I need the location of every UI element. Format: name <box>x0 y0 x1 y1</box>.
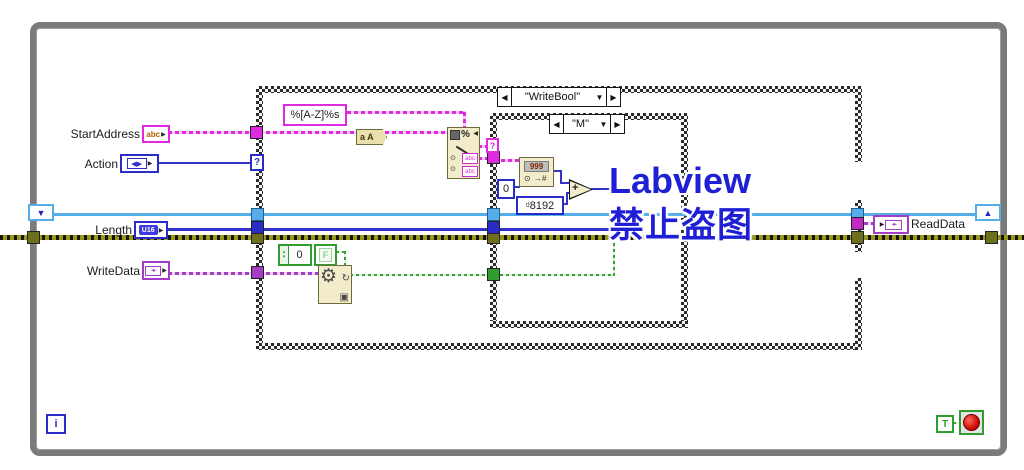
inner-case-selector-terminal[interactable]: ? <box>486 138 499 153</box>
scan-in-case-wire <box>501 159 519 162</box>
to-upper-case-node[interactable]: a A <box>356 129 387 145</box>
to-upper-label: a A <box>360 132 374 142</box>
reference-wire <box>52 213 978 216</box>
enum-zero-constant[interactable]: ▴▾ 0 <box>278 244 312 266</box>
shift-register-left[interactable]: ▼ <box>28 204 54 221</box>
zero-constant[interactable]: 0 <box>497 179 515 199</box>
true-constant[interactable]: T <box>936 415 954 433</box>
question-icon: ? <box>254 157 260 168</box>
decimal-string-to-number-node[interactable]: 999 ⊙ →# <box>519 157 554 187</box>
format-string-wire-h <box>347 111 466 114</box>
cluster-type-glyph: -●- <box>885 220 902 230</box>
input-square-icon <box>450 130 460 140</box>
format-string-constant[interactable]: %[A-Z]%s <box>283 104 347 126</box>
length-tunnel-case-left <box>251 221 264 234</box>
enum-zero-value: 0 <box>289 249 310 261</box>
small-arrow-icon: ◀ <box>473 130 478 137</box>
gear-icon: ⚙ <box>320 265 337 288</box>
length-wire <box>166 228 640 231</box>
format-string-value: %[A-Z]%s <box>291 109 340 121</box>
u16-type-glyph: U16 <box>139 225 158 235</box>
right-arrow-icon: ▶ <box>162 267 167 274</box>
start-address-terminal[interactable]: abc ▶ <box>142 125 170 143</box>
action-wire <box>157 162 254 164</box>
right-arrow-icon: ▶ <box>159 227 164 234</box>
length-terminal[interactable]: U16 ▶ <box>134 221 168 239</box>
cluster-tunnel-case-left <box>251 266 264 279</box>
case-prev-icon[interactable]: ◀ <box>498 88 512 106</box>
target-icon: ⊙ <box>450 165 456 173</box>
right-arrow-icon: ▶ <box>880 221 885 228</box>
inner-case-name[interactable]: "M" <box>564 118 597 130</box>
error-tunnel-loop-left <box>27 231 40 244</box>
zero-value: 0 <box>503 183 509 195</box>
boolean-tunnel-inner-left <box>487 268 500 281</box>
watermark-line2: 禁止盗图 <box>609 197 753 248</box>
plus-icon: + <box>572 182 578 194</box>
percent-icon: % <box>461 129 470 140</box>
read-data-label: ReadData <box>911 217 965 231</box>
offset-value: 8192 <box>530 200 554 212</box>
add-node[interactable]: + <box>569 179 593 200</box>
outer-case-name[interactable]: "WriteBool" <box>512 91 593 103</box>
question-icon: ? <box>490 141 496 151</box>
cluster-tunnel-case-right <box>851 217 864 230</box>
watermark-line1: Labview <box>609 160 751 202</box>
case-next-icon[interactable]: ▶ <box>606 88 620 106</box>
window-icon: ▣ <box>340 292 349 303</box>
right-arrow-icon: ▶ <box>161 131 166 138</box>
string-output-chip: abc <box>462 153 478 164</box>
read-data-terminal[interactable]: ▶ -●- <box>873 215 909 234</box>
write-data-terminal[interactable]: -●- ▶ <box>142 261 170 280</box>
target-icon: ⊙ <box>450 154 456 162</box>
up-triangle-icon: ▲ <box>984 208 993 218</box>
right-arrow-icon: ▶ <box>148 160 153 167</box>
down-triangle-icon: ▼ <box>37 208 46 218</box>
case-next-icon[interactable]: ▶ <box>610 115 624 133</box>
reference-tunnel-case-left <box>251 208 264 221</box>
start-address-wire <box>168 131 448 134</box>
outer-case-selector-label[interactable]: ◀ "WriteBool" ▼ ▶ <box>497 87 621 107</box>
string-type-glyph: abc <box>146 130 160 139</box>
outer-case-border-right-3 <box>855 278 862 350</box>
digits-display: 999 <box>524 161 549 172</box>
false-value: F <box>319 248 332 262</box>
inner-case-border-bottom <box>490 321 688 328</box>
spinner-icon[interactable]: ▴▾ <box>280 246 289 264</box>
case-prev-icon[interactable]: ◀ <box>550 115 564 133</box>
stop-icon <box>963 414 980 431</box>
false-wire-v <box>344 251 346 266</box>
string-output-chip: abc <box>462 166 478 177</box>
action-label: Action <box>78 157 118 171</box>
gear-convert-node[interactable]: ⚙ ↻ ▣ <box>318 265 352 304</box>
iteration-i: i <box>54 418 57 430</box>
write-data-wire <box>168 272 318 275</box>
length-label: Length <box>86 223 132 237</box>
iteration-terminal[interactable]: i <box>46 414 66 434</box>
false-constant[interactable]: F <box>314 244 337 266</box>
reference-tunnel-inner-left <box>487 208 500 221</box>
labview-block-diagram: ? ? ▼ ▲ ◀ "WriteBool" ▼ ▶ ◀ "M" ▼ ▶ %[A-… <box>0 0 1024 470</box>
error-tunnel-case-right <box>851 231 864 244</box>
true-value: T <box>942 419 948 430</box>
target-icon: ⊙ <box>524 174 531 183</box>
case-dropdown-icon[interactable]: ▼ <box>597 115 610 133</box>
enum-type-glyph: ◀▶ <box>127 158 147 169</box>
outer-case-selector-terminal[interactable]: ? <box>250 154 264 171</box>
outer-case-border-right-1 <box>855 86 862 162</box>
rotate-arrow-icon: ↻ <box>342 273 350 284</box>
string-tunnel-case-left <box>250 126 263 139</box>
cluster-type-glyph: -●- <box>145 266 161 276</box>
length-tunnel-inner-left <box>487 221 500 234</box>
inner-case-selector-label[interactable]: ◀ "M" ▼ ▶ <box>549 114 625 134</box>
loop-condition-stop-button[interactable] <box>959 410 984 435</box>
scan-from-string-node[interactable]: % ◀ ⊙ ⊙ abc abc <box>447 127 480 179</box>
case-dropdown-icon[interactable]: ▼ <box>593 88 606 106</box>
error-tunnel-loop-right <box>985 231 998 244</box>
start-address-label: StartAddress <box>60 127 140 141</box>
to-number-icon: →# <box>534 174 546 183</box>
action-terminal[interactable]: ◀▶ ▶ <box>120 154 159 173</box>
write-data-label: WriteData <box>66 264 140 278</box>
boolean-wire-h <box>350 274 615 276</box>
offset-constant[interactable]: d 8192 <box>516 196 564 215</box>
shift-register-right[interactable]: ▲ <box>975 204 1001 221</box>
outer-case-border-bottom <box>256 343 862 350</box>
